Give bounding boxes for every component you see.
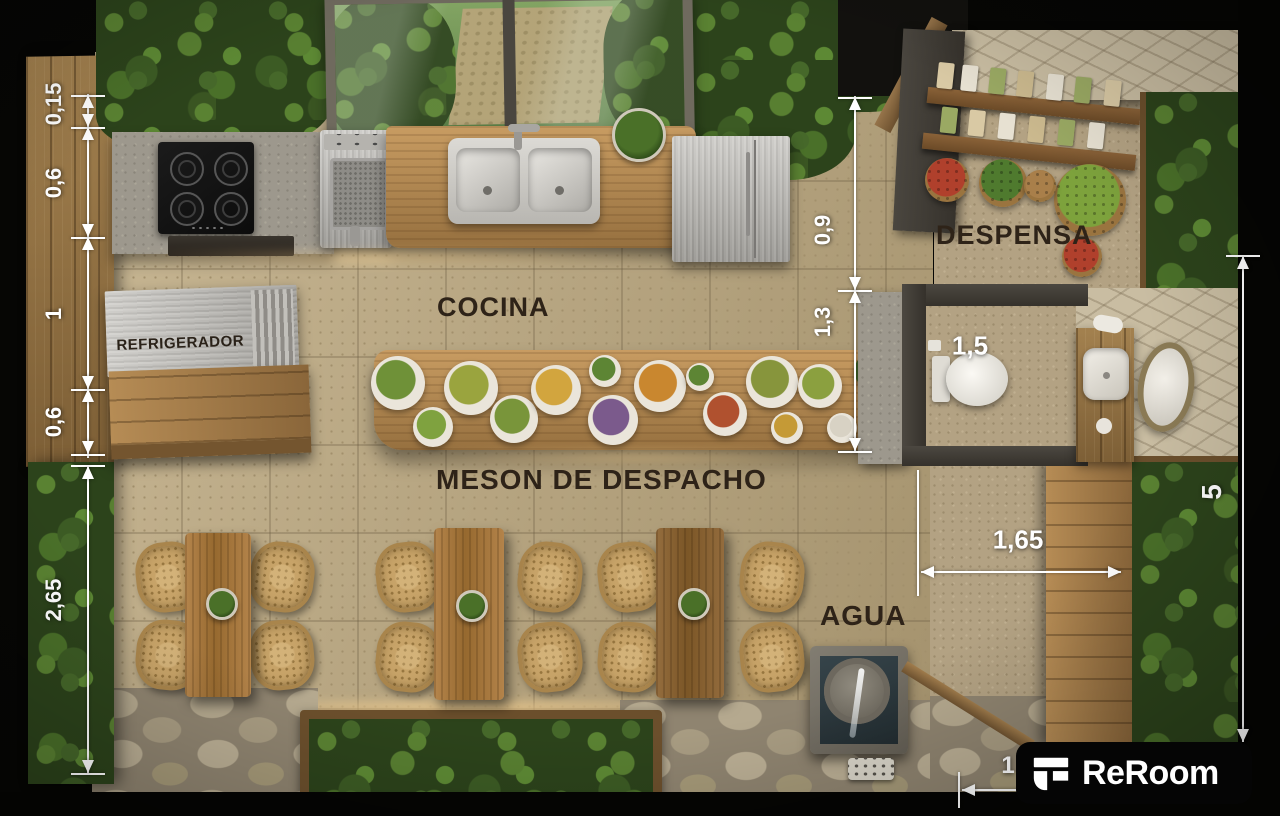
bath-wall-bottom [902,446,1088,466]
floorplan-render: REFRIGERADOR C [0,0,1280,816]
food-plate [371,356,425,410]
bath-wall-top [902,284,1088,306]
bath-divider-wall [858,292,906,464]
food-plate [686,363,714,391]
toilet [932,352,1010,406]
label-despensa: DESPENSA [936,220,1093,251]
food-plate [413,407,453,447]
light-switch [928,340,941,351]
label-agua: AGUA [820,600,906,632]
vanity-drain [1103,372,1110,379]
food-plate [746,356,798,408]
bath-wall-left [902,284,926,466]
food-plate [444,361,498,415]
label-meson: MESON DE DESPACHO [436,464,767,496]
food-plate [531,365,581,415]
reroom-logo-text: ReRoom [1082,754,1219,793]
food-plate [588,395,638,445]
food-plate [634,360,686,412]
floor-drain [848,758,894,780]
food-plate [490,395,538,443]
table-plant [678,588,710,620]
food-plate [589,355,621,387]
reroom-watermark: ReRoom [1016,742,1252,804]
food-plate [798,364,842,408]
table-plant [456,590,488,622]
chair [247,617,317,692]
water-fountain [810,646,908,754]
food-plate [703,392,747,436]
food-plate [827,413,857,443]
food-plate [771,412,803,444]
toilet-bowl [946,352,1008,406]
table-plant [206,588,238,620]
frame-right [1238,0,1280,816]
vanity-soap [1096,418,1112,434]
label-cocina: COCINA [437,292,550,323]
reroom-logo-icon [1030,752,1072,794]
